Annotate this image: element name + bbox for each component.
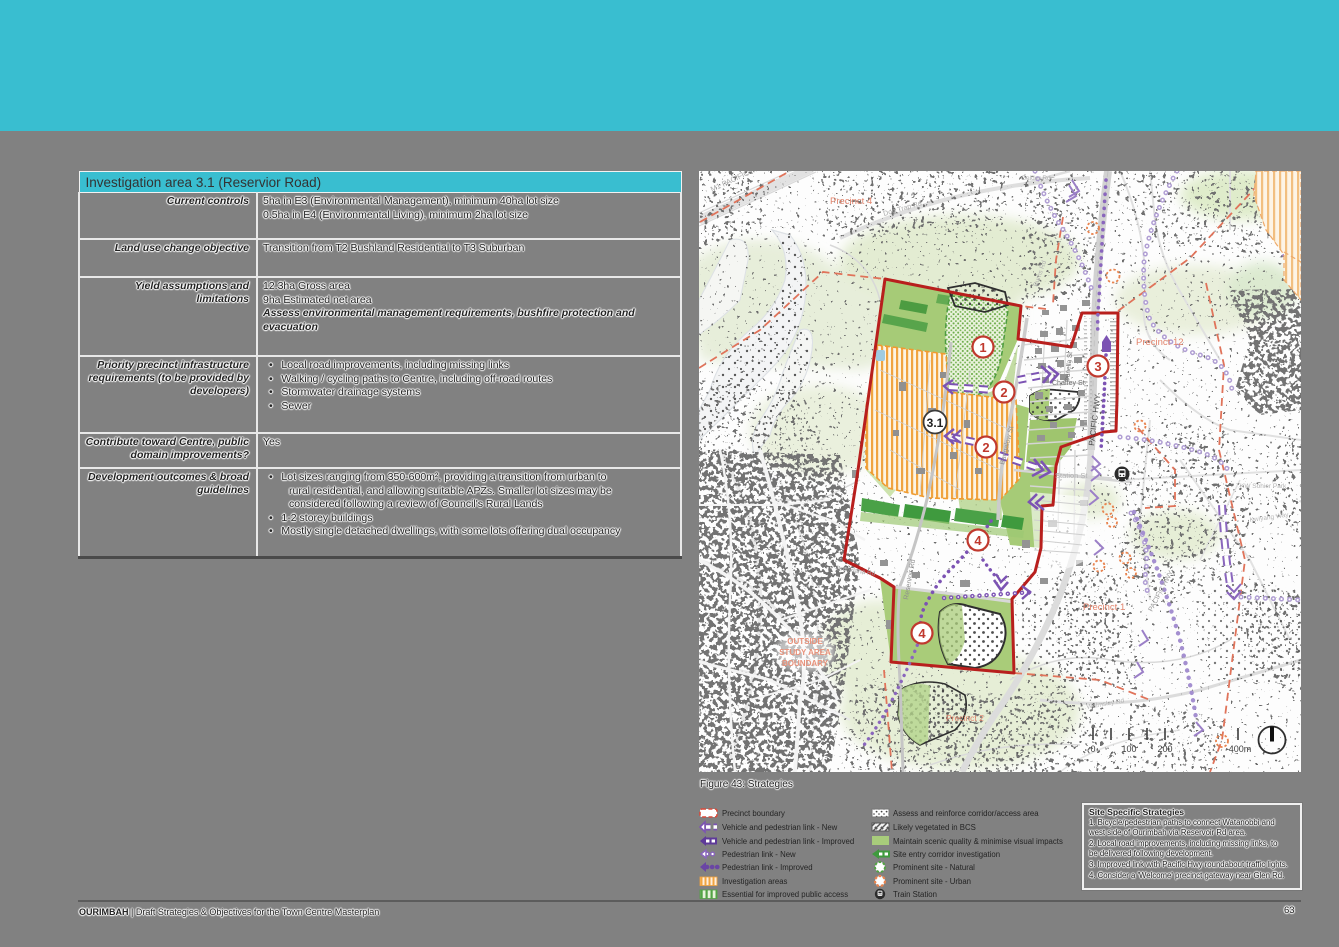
svg-text:Pedestrian link - Improved: Pedestrian link - Improved — [722, 863, 813, 872]
svg-text:400m: 400m — [1229, 744, 1252, 754]
svg-text:Investigation areas: Investigation areas — [722, 877, 788, 886]
svg-text:Maintain scenic quality & mini: Maintain scenic quality & minimise visua… — [893, 837, 1063, 846]
svg-text:Precinct 4: Precinct 4 — [830, 196, 872, 207]
svg-text:3: 3 — [1094, 359, 1101, 374]
svg-text:Precinct 2: Precinct 2 — [946, 713, 984, 723]
svg-text:Prominent site - Urban: Prominent site - Urban — [893, 877, 971, 886]
svg-text:Station St: Station St — [1055, 471, 1088, 480]
svg-text:4: 4 — [974, 533, 982, 548]
svg-text:4: 4 — [918, 626, 926, 641]
svg-text:Gelder Rd: Gelder Rd — [1021, 175, 1051, 182]
svg-text:0: 0 — [1090, 744, 1095, 754]
svg-text:Precinct 1: Precinct 1 — [1083, 602, 1125, 613]
svg-text:Assess and reinforce corridor/: Assess and reinforce corridor/access are… — [893, 809, 1039, 818]
svg-text:Pedestrian link - New: Pedestrian link - New — [722, 850, 796, 859]
svg-text:STUDY AREA: STUDY AREA — [779, 648, 831, 657]
svg-text:Precinct boundary: Precinct boundary — [722, 809, 785, 818]
svg-text:1: 1 — [979, 340, 986, 355]
svg-text:Essential for improved public: Essential for improved public access — [722, 890, 848, 899]
svg-text:200: 200 — [1157, 744, 1172, 754]
svg-text:Site entry corridor investigat: Site entry corridor investigation — [893, 850, 1000, 859]
svg-text:Prominent site - Natural: Prominent site - Natural — [893, 863, 975, 872]
svg-text:3.1: 3.1 — [927, 416, 944, 430]
svg-text:2: 2 — [982, 440, 989, 455]
svg-text:Chaffey St: Chaffey St — [1052, 380, 1085, 387]
svg-text:BOUNDARY: BOUNDARY — [782, 659, 829, 668]
svg-text:Vehicle and pedestrian link -: Vehicle and pedestrian link - New — [722, 823, 838, 832]
svg-text:2: 2 — [1000, 385, 1007, 400]
svg-text:Train Station: Train Station — [893, 890, 937, 899]
svg-text:100: 100 — [1121, 744, 1136, 754]
svg-text:KW Sohier Park: KW Sohier Park — [1240, 483, 1287, 490]
svg-text:Vehicle and pedestrian link -: Vehicle and pedestrian link - Improved — [722, 837, 854, 846]
svg-text:OUTSIDE: OUTSIDE — [787, 637, 823, 646]
svg-text:Likely vegetated in BCS: Likely vegetated in BCS — [893, 823, 976, 832]
svg-text:Precinct 12: Precinct 12 — [1136, 337, 1184, 348]
